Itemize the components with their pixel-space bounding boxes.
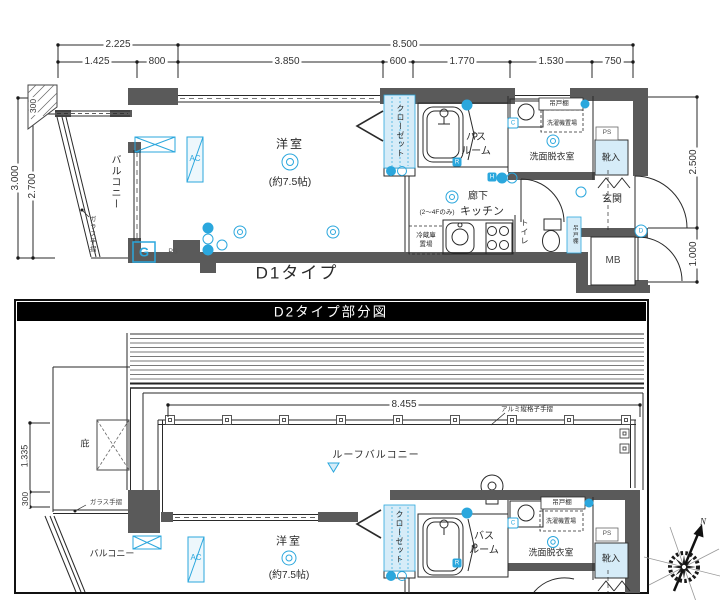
d2-balcony-label: バルコニー — [90, 550, 135, 559]
d1-gas-meter-label: G — [139, 246, 149, 259]
floorplan-sheet: 2.225 8.500 1.425 800 3.850 600 1.770 1.… — [0, 0, 720, 600]
d1-kitchen-label: キッチン — [460, 207, 504, 218]
d1-washroom-label: 洗面脱衣室 — [529, 153, 574, 162]
d1-dim-seg5: 1.770 — [447, 57, 476, 67]
d1-toilet-label: トイレ — [520, 219, 528, 246]
d2-wall-badge: C — [508, 518, 519, 529]
d1-dim-seg6: 1.530 — [536, 57, 565, 67]
d2-ac-label: AC — [190, 554, 201, 562]
d2-dim-roof-width: 8.455 — [389, 400, 418, 410]
d1-dim-left-width: 2.225 — [103, 40, 132, 50]
d1-dim-seg3: 3.850 — [272, 57, 301, 67]
d2-room-label: 洋室 — [276, 537, 302, 548]
d1-bath-label-2: ルーム — [461, 147, 491, 157]
d1-room-size-label: (約7.5帖) — [269, 177, 312, 188]
d1-dim-seg1: 1.425 — [82, 57, 111, 67]
d1-hall-badge: H — [488, 173, 497, 182]
d1-ps-lower-label: PS — [168, 249, 177, 256]
floorplan-linework — [0, 0, 720, 600]
d1-dim-seg4: 600 — [388, 57, 409, 67]
d2-eaves-label: 庇 — [80, 440, 89, 449]
d1-fridge-label-1: 冷蔵庫 — [416, 233, 436, 240]
d1-room-label: 洋室 — [276, 138, 304, 150]
d2-bath-label-1: バス — [474, 532, 494, 542]
d2-room-size-label: (約7.5帖) — [269, 571, 310, 581]
d1-fridge-label-2: 置場 — [420, 242, 433, 249]
d1-toilet-cupboard-label: 吊戸棚 — [571, 225, 577, 245]
d1-dim-right-1000: 1.000 — [689, 239, 699, 268]
d1-glass-rail-label: ガラス手摺 — [88, 215, 95, 253]
d1-dim-left-2700: 2.700 — [28, 171, 38, 200]
d1-ac-label: AC — [189, 155, 200, 163]
d1-bath-label-1: バス — [466, 133, 486, 143]
d1-entry-badge: D — [635, 225, 648, 238]
d1-washer-space-label: 洗濯機置場 — [547, 121, 577, 127]
d2-rail-note-label: アルミ縦格子手摺 — [501, 407, 553, 414]
d1-plan-title: D1タイプ — [256, 265, 339, 282]
d1-corridor-label: 廊下 — [468, 192, 488, 202]
d2-washer-space-label: 洗濯機置場 — [546, 519, 576, 525]
d2-bath-label-2: ルーム — [469, 546, 499, 556]
d1-shoe-box-label: 靴入 — [602, 154, 620, 163]
d2-dim-300: 300 — [21, 490, 30, 508]
d2-washroom-label: 洗面脱衣室 — [528, 549, 573, 558]
d1-wall-badge: C — [508, 118, 519, 129]
d1-closet-label: クローゼット — [396, 104, 404, 158]
d1-dim-seg7: 750 — [603, 57, 624, 67]
d1-bath-badge: R — [453, 158, 462, 167]
d2-dim-1335: 1.335 — [21, 443, 30, 470]
d1-dim-left-total: 3.000 — [11, 163, 21, 192]
d1-kitchen-note-label: (2〜4Fのみ) — [419, 210, 454, 217]
d1-dim-total-width: 8.500 — [390, 40, 419, 50]
d2-roof-balcony-label: ルーフバルコニー — [332, 451, 419, 461]
d2-bath-badge: R — [453, 559, 462, 568]
d1-meter-box-label: MB — [606, 256, 621, 266]
compass-rose — [644, 524, 720, 600]
d2-ps-label: PS — [603, 531, 612, 538]
d2-glass-rail-label: ガラス手摺 — [90, 500, 122, 507]
d2-panel-title: D2タイプ部分図 — [274, 305, 388, 319]
d1-dim-seg2: 800 — [147, 57, 168, 67]
d2-shoe-box-label: 靴入 — [602, 555, 620, 564]
d2-hanging-cupboard-label: 吊戸棚 — [552, 500, 572, 507]
d2-closet-label: クローゼット — [395, 510, 403, 564]
compass-north-label: N — [700, 518, 706, 527]
d1-ps-upper-label: PS — [603, 130, 612, 137]
d1-entrance-label: 玄関 — [602, 195, 622, 205]
d1-dim-right-2500: 2.500 — [689, 147, 699, 176]
d1-hanging-cupboard-label: 吊戸棚 — [549, 101, 569, 108]
d1-dim-left-300: 300 — [29, 97, 38, 115]
d1-balcony-label: バルコニー — [109, 155, 119, 210]
